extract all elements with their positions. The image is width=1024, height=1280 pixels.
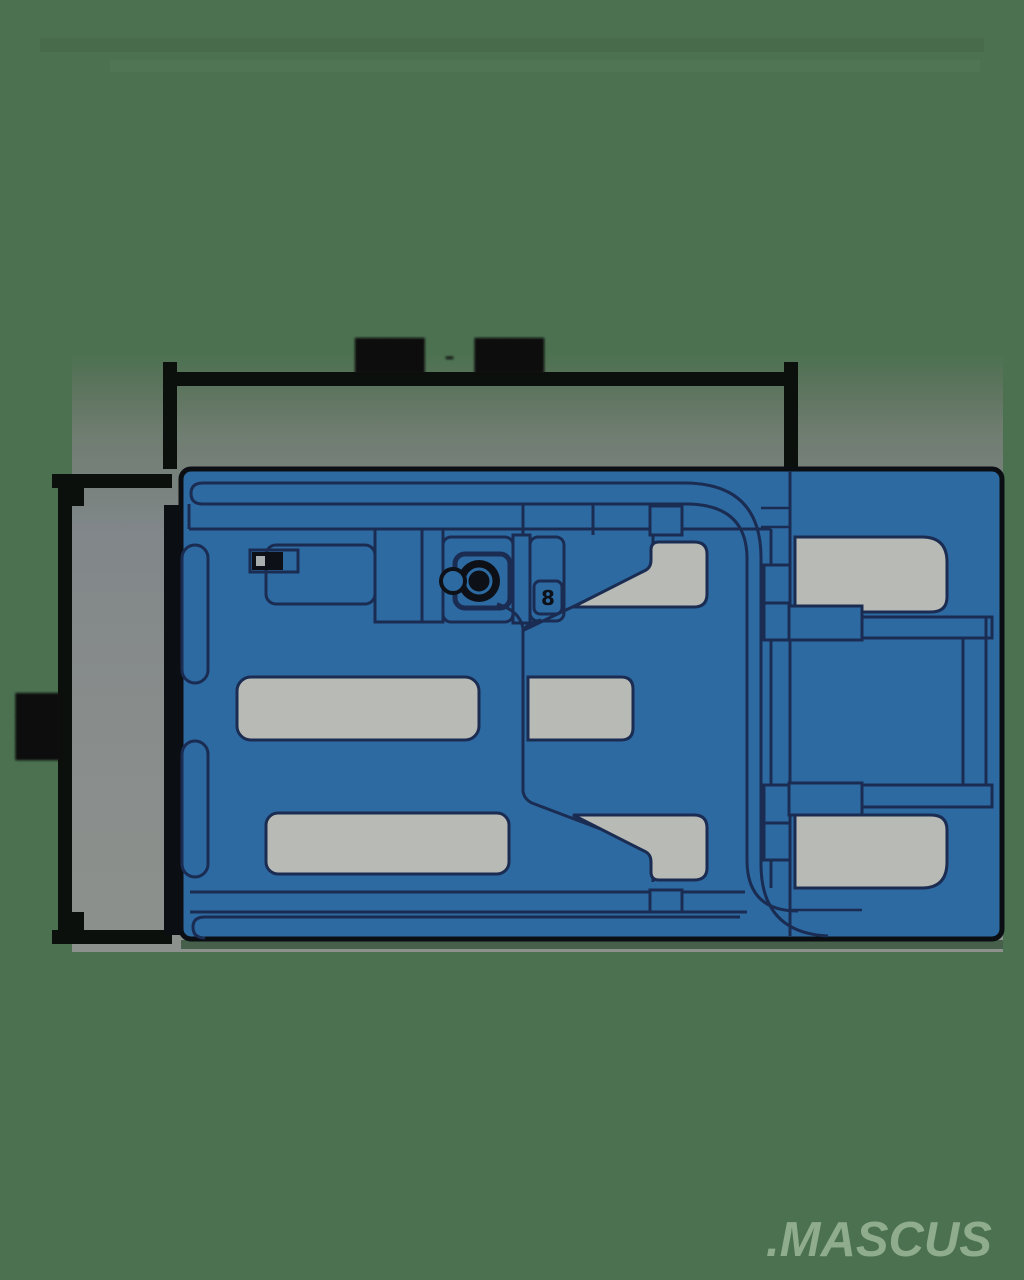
left-wheel-slot-top: [182, 545, 208, 683]
dimension-endcap-left: [163, 362, 177, 469]
deck-opening-middle-left: [237, 677, 479, 740]
dimension-tick-top: [70, 488, 84, 506]
rear-wheel-bottom: [795, 815, 947, 888]
hitch-stub-top: [789, 606, 862, 640]
rear-wheel-top: [795, 537, 947, 612]
deck-opening-middle-center: [528, 677, 633, 740]
left-wheel-slot-bottom: [182, 741, 208, 877]
console-badge: 8: [541, 586, 555, 610]
dimension-line-horizontal: [170, 372, 790, 386]
neck-step: [764, 823, 790, 860]
mascus-watermark: .MASCUS: [766, 1213, 992, 1267]
machine-top-view: 8: [164, 469, 1003, 949]
rail-step-bottom: [650, 890, 682, 912]
dimension-tick-bottom: [70, 912, 84, 930]
dimension-line-vertical: [58, 488, 72, 930]
dimension-endcap-bottom: [52, 930, 172, 944]
hitch-stub-bottom: [789, 783, 862, 815]
fork-face-plate: [164, 505, 182, 935]
rail-step-top: [650, 506, 682, 535]
width-dimension-label: ███: [15, 692, 61, 761]
spec-drawing: ████ - ████ ███: [0, 0, 1024, 1280]
length-dimension-label: ████ - ████: [354, 337, 545, 374]
hitch-beam-bottom: [862, 785, 992, 807]
hitch-beam-top: [862, 617, 992, 638]
scan-band-artifact: [110, 60, 980, 72]
joystick-button: [256, 556, 265, 566]
page: ████ - ████ ███: [0, 0, 1024, 1280]
neck-step: [764, 565, 790, 603]
dimension-endcap-top: [52, 474, 172, 488]
dimension-endcap-right: [784, 362, 798, 469]
scan-band-artifact: [40, 38, 984, 52]
steering-knob: [441, 569, 465, 593]
deck-opening-bottom-left: [266, 813, 509, 874]
neck-step: [764, 603, 790, 640]
neck-step: [764, 785, 790, 823]
